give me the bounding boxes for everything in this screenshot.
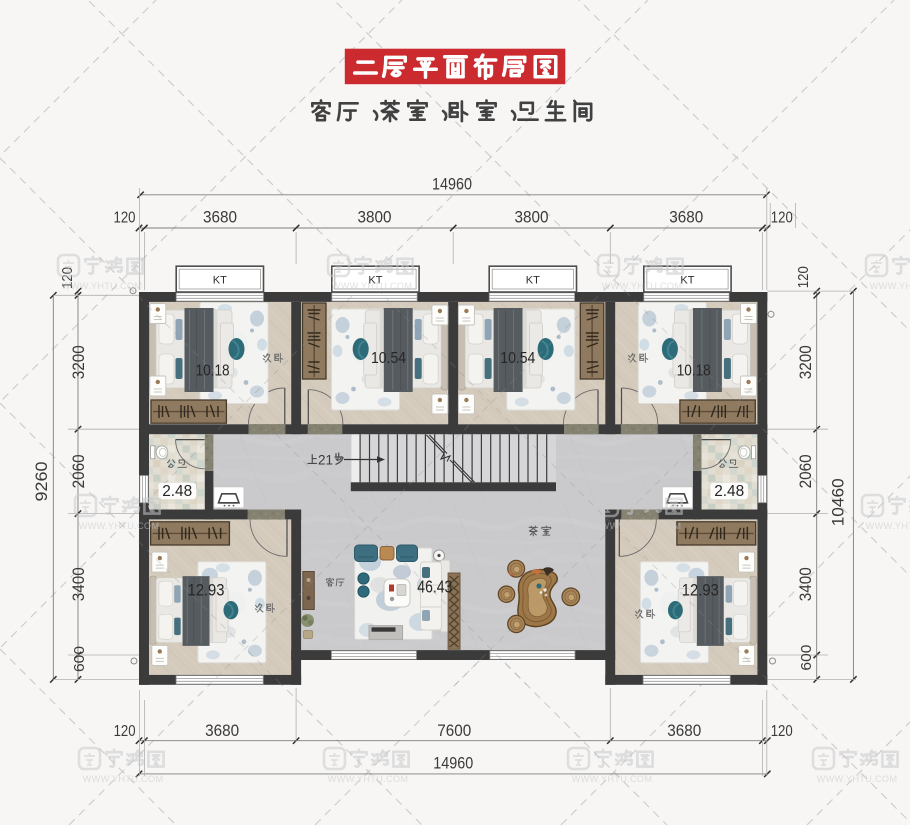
svg-text:WWW.YHTU.COM: WWW.YHTU.COM (817, 774, 898, 784)
svg-text:WWW.YHTU.COM: WWW.YHTU.COM (328, 774, 409, 784)
svg-text:10460: 10460 (829, 478, 848, 526)
svg-text:120: 120 (114, 723, 136, 740)
svg-text:2.48: 2.48 (714, 483, 744, 500)
svg-text:10.54: 10.54 (371, 350, 406, 367)
svg-text:600: 600 (71, 646, 88, 672)
svg-text:2060: 2060 (796, 454, 815, 488)
svg-text:12.93: 12.93 (188, 580, 225, 599)
svg-text:3680: 3680 (669, 208, 703, 227)
svg-text:600: 600 (798, 645, 815, 671)
svg-text:120: 120 (771, 210, 793, 227)
svg-text:21: 21 (318, 453, 333, 468)
svg-text:12.93: 12.93 (682, 580, 719, 599)
svg-text:3800: 3800 (358, 208, 392, 227)
svg-text:WWW.YHTU.COM: WWW.YHTU.COM (870, 281, 910, 291)
svg-text:3200: 3200 (796, 345, 815, 379)
svg-text:120: 120 (795, 266, 812, 288)
svg-text:2060: 2060 (69, 454, 88, 488)
svg-text:3680: 3680 (203, 208, 237, 227)
svg-text:14960: 14960 (433, 754, 473, 773)
svg-text:WWW.YHTU.COM: WWW.YHTU.COM (79, 521, 160, 531)
svg-text:3680: 3680 (205, 721, 239, 740)
svg-text:9260: 9260 (32, 462, 51, 502)
svg-text:WWW.YHTU.COM: WWW.YHTU.COM (332, 281, 413, 291)
svg-text:WWW.YHTU.COM: WWW.YHTU.COM (601, 521, 682, 531)
svg-text:WWW.YHTU.COM: WWW.YHTU.COM (572, 774, 653, 784)
svg-text:10.18: 10.18 (677, 363, 711, 380)
svg-text:14960: 14960 (432, 174, 472, 193)
svg-text:7600: 7600 (437, 721, 471, 740)
svg-text:3400: 3400 (796, 567, 815, 601)
svg-text:WWW.YHTU.COM: WWW.YHTU.COM (62, 281, 143, 291)
svg-text:120: 120 (114, 210, 136, 227)
svg-text:WWW.YHTU.COM: WWW.YHTU.COM (334, 521, 415, 531)
svg-text:WWW.YHTU.COM: WWW.YHTU.COM (602, 281, 683, 291)
svg-text:46.43: 46.43 (417, 576, 452, 596)
svg-text:3400: 3400 (69, 567, 88, 601)
svg-text:10.54: 10.54 (500, 350, 535, 367)
svg-text:WWW.YHTU.COM: WWW.YHTU.COM (83, 774, 164, 784)
svg-text:3800: 3800 (515, 208, 549, 227)
svg-text:3680: 3680 (667, 721, 701, 740)
svg-text:2.48: 2.48 (162, 483, 192, 500)
svg-text:10.18: 10.18 (196, 363, 230, 380)
svg-text:120: 120 (771, 723, 793, 740)
svg-text:3200: 3200 (69, 345, 88, 379)
svg-text:WWW.YHTU.COM: WWW.YHTU.COM (866, 521, 910, 531)
